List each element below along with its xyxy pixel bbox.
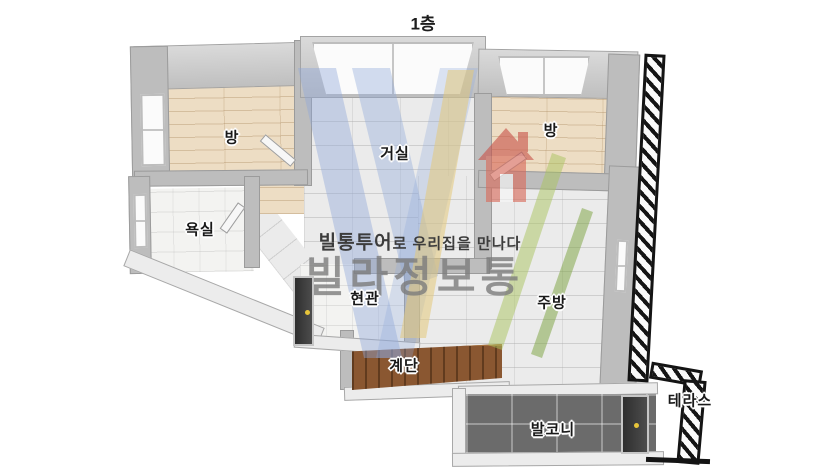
floor-title: 1층 (410, 10, 435, 35)
kitchen-window (615, 240, 628, 292)
bedrooms-bottom-wall-left (134, 169, 308, 187)
entrance-door (293, 276, 314, 346)
room-label-bedroom-right: 방 (544, 120, 559, 141)
room-label-stairs: 계단 (389, 355, 419, 376)
bathroom-right-wall (244, 176, 260, 268)
room-label-kitchen: 주방 (537, 292, 567, 313)
bedroom-left-window (140, 94, 165, 166)
room-label-bathroom: 욕실 (185, 219, 215, 240)
room-label-entrance: 현관 (350, 288, 380, 309)
bathroom-window (134, 194, 148, 248)
room-label-bedroom-left: 방 (225, 127, 240, 148)
room-label-living-room: 거실 (380, 143, 410, 164)
entrance-door-knob-icon (305, 310, 310, 315)
entrance-right-wall (404, 272, 420, 346)
entrance-top-wall (354, 258, 490, 274)
room-label-balcony: 발코니 (531, 419, 575, 440)
living-room-window (312, 42, 474, 96)
balcony-door-knob-icon (634, 423, 639, 428)
balcony-door (621, 395, 649, 454)
room-label-terrace: 테라스 (668, 390, 712, 411)
floorplan-canvas: 1층 (0, 0, 840, 472)
bedroom-right-window (498, 56, 590, 96)
